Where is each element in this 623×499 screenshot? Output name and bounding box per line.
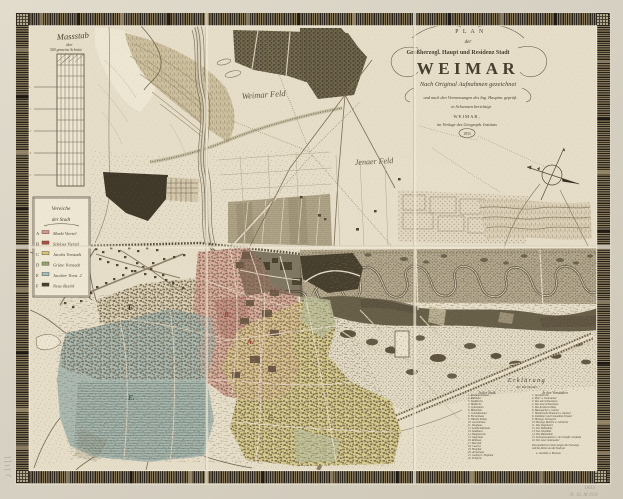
svg-text:1833: 1833 bbox=[584, 485, 595, 491]
svg-text:N. 16. M 19.6: N. 16. M 19.6 bbox=[569, 493, 598, 498]
